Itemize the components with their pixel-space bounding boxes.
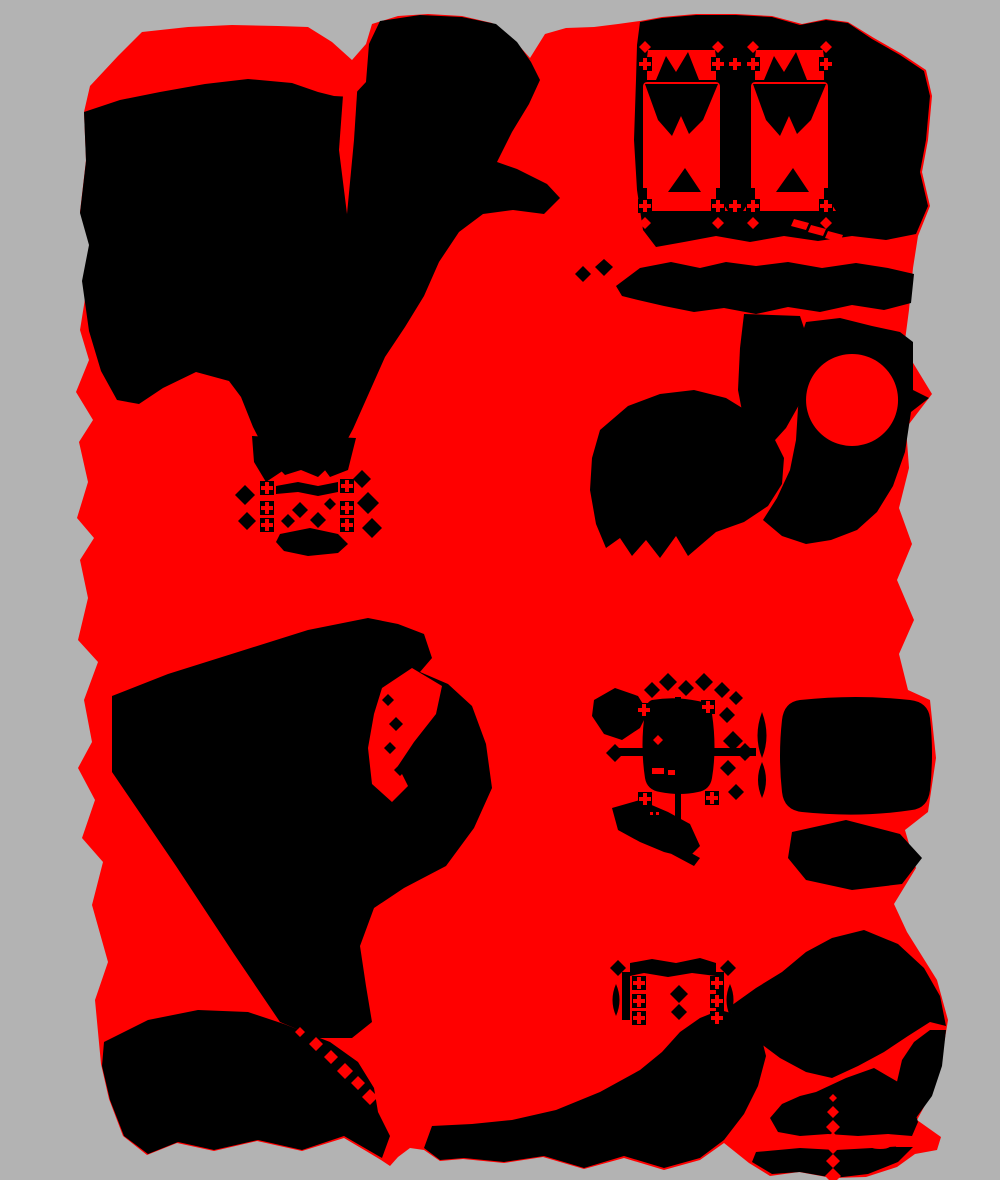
- abstract-composition: [0, 0, 1000, 1180]
- cluster2-right-mass: [780, 697, 932, 815]
- right-red-circle: [806, 354, 898, 446]
- abstract-canvas: [0, 0, 1000, 1180]
